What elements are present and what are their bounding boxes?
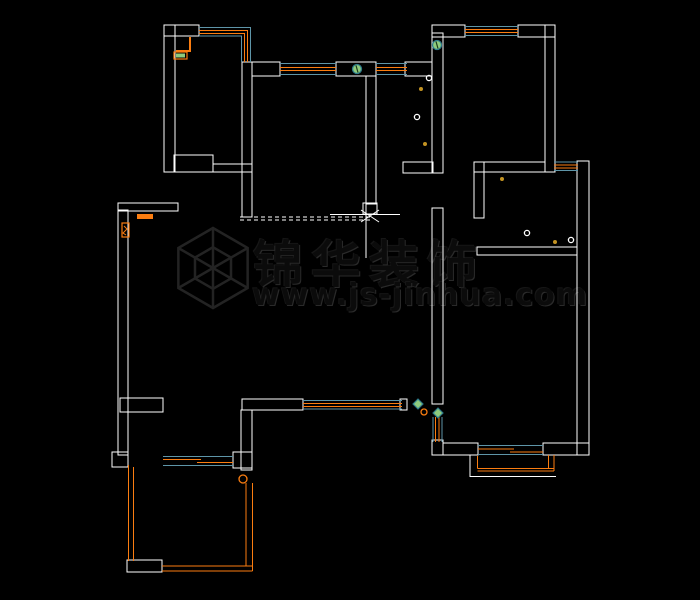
floorplan-screenshot: 锦华装饰 www.js-jinhua.com — [0, 0, 700, 600]
wall-segment — [474, 162, 484, 218]
drain-ring-icon — [421, 409, 427, 415]
wall-segment — [474, 162, 545, 172]
wall-segment — [405, 62, 432, 76]
wall-segment — [127, 560, 162, 572]
wall-segment — [242, 62, 252, 217]
wall-segment — [164, 25, 175, 172]
door-switch-icon — [433, 408, 443, 418]
window-frame-line — [123, 226, 127, 235]
outlet-dot-icon — [553, 240, 557, 244]
hexagon-logo-icon — [178, 228, 247, 308]
wall-segment — [213, 164, 252, 172]
wall-segment — [432, 33, 443, 173]
door-switch-icon — [413, 399, 423, 409]
wall-segment — [403, 162, 433, 173]
wall-segment — [164, 25, 199, 36]
window-frame-line — [176, 37, 190, 51]
meter-box-icon — [176, 54, 185, 58]
fixture-icon — [414, 114, 419, 119]
wall-segment — [366, 76, 376, 204]
drain-ring-icon — [239, 475, 247, 483]
wall-segment — [545, 25, 555, 172]
wall-segment — [241, 410, 252, 470]
wall-segment — [174, 155, 213, 172]
symbols-layer — [239, 41, 574, 484]
wall-segment — [543, 443, 589, 455]
wall-segment — [252, 62, 280, 76]
window-frame-line — [199, 34, 245, 63]
wall-segment — [518, 25, 555, 37]
fixture-icon — [568, 237, 573, 242]
wall-segment — [112, 452, 128, 467]
window-glass-line — [199, 28, 251, 63]
fixture-icon — [524, 230, 529, 235]
windows-doors-layer — [122, 27, 578, 572]
electrical-panel-icon — [137, 214, 153, 219]
wall-segment — [233, 452, 252, 468]
outlet-dot-icon — [419, 87, 423, 91]
window-frame-line — [199, 31, 248, 63]
outlet-dot-icon — [500, 177, 504, 181]
wall-segment — [432, 440, 443, 455]
wall-segment — [432, 25, 465, 37]
wall-segment — [120, 398, 163, 412]
wall-segment — [477, 247, 577, 255]
window-glass-line — [199, 36, 242, 62]
wall-segment — [577, 161, 589, 455]
wall-segment — [443, 443, 478, 455]
wall-line — [470, 455, 556, 477]
outlet-dot-icon — [423, 142, 427, 146]
wall-segment — [242, 399, 303, 410]
walls-layer — [112, 25, 589, 572]
floorplan-drawing — [0, 0, 700, 600]
wall-segment — [432, 208, 443, 404]
wall-segment — [118, 210, 128, 455]
